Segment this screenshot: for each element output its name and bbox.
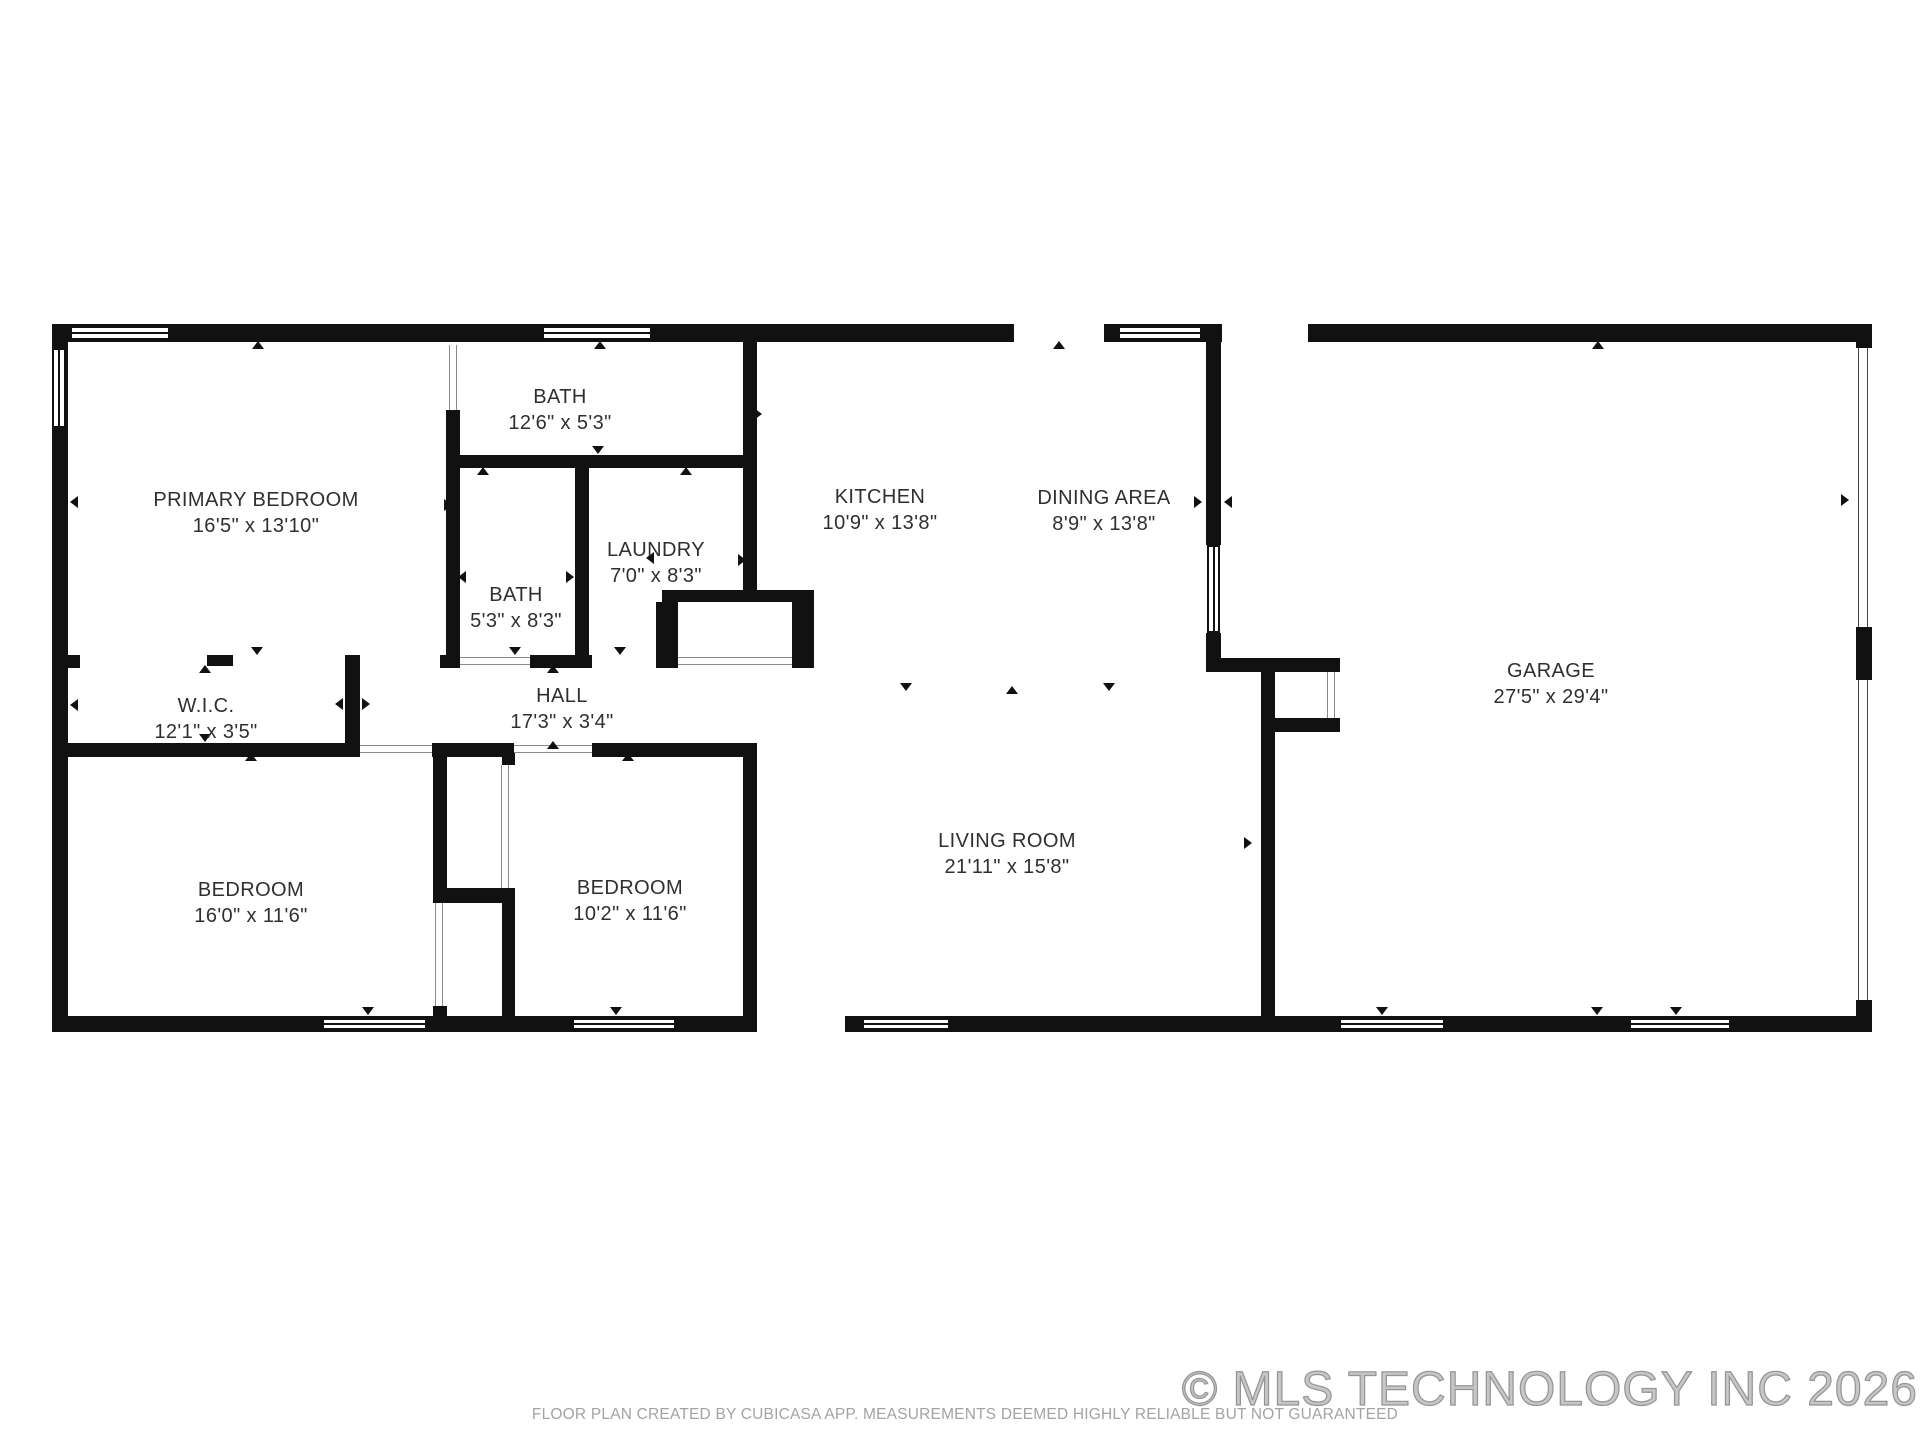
door-opening <box>501 765 509 888</box>
wall <box>52 324 1014 342</box>
room-dimensions: 8'9" x 13'8" <box>1037 511 1170 537</box>
room-dimensions: 12'6" x 5'3" <box>508 410 611 436</box>
window <box>572 1018 676 1030</box>
room-dimensions: 5'3" x 8'3" <box>470 608 562 634</box>
wall <box>446 410 460 668</box>
door-opening <box>460 657 530 665</box>
door-arrow-icon <box>199 665 211 673</box>
window <box>1207 545 1220 633</box>
room-name: HALL <box>510 683 613 709</box>
room-label-bedroom-left: BEDROOM16'0" x 11'6" <box>194 877 307 929</box>
wall <box>662 590 814 602</box>
wall <box>446 455 757 468</box>
room-name: BEDROOM <box>194 877 307 903</box>
room-name: W.I.C. <box>154 693 257 719</box>
door-arrow-icon <box>900 683 912 691</box>
door-opening <box>360 745 432 753</box>
room-name: PRIMARY BEDROOM <box>153 487 358 513</box>
room-dimensions: 7'0" x 8'3" <box>607 563 705 589</box>
door-arrow-icon <box>1591 1007 1603 1015</box>
wall <box>440 655 460 668</box>
wall <box>792 602 814 668</box>
door-arrow-icon <box>335 698 343 710</box>
room-label-bath-top: BATH12'6" x 5'3" <box>508 384 611 436</box>
door-arrow-icon <box>622 753 634 761</box>
room-label-dining-area: DINING AREA8'9" x 13'8" <box>1037 485 1170 537</box>
room-label-kitchen: KITCHEN10'9" x 13'8" <box>823 484 938 536</box>
wall <box>345 655 360 757</box>
wall <box>1261 660 1275 1016</box>
door-opening <box>1327 672 1335 718</box>
wall <box>502 903 515 1016</box>
room-dimensions: 17'3" x 3'4" <box>510 709 613 735</box>
door-arrow-icon <box>566 571 574 583</box>
door-arrow-icon <box>738 554 746 566</box>
door-arrow-icon <box>251 647 263 655</box>
door-opening <box>449 345 457 410</box>
window <box>70 326 170 340</box>
door-arrow-icon <box>592 446 604 454</box>
room-dimensions: 16'5" x 13'10" <box>153 513 358 539</box>
door-arrow-icon <box>610 1007 622 1015</box>
door-arrow-icon <box>252 341 264 349</box>
room-dimensions: 12'1" x 3'5" <box>154 719 257 745</box>
wall <box>1206 633 1221 658</box>
garage-door-opening <box>1858 680 1868 1000</box>
wall <box>656 602 678 668</box>
door-arrow-icon <box>1103 683 1115 691</box>
wall <box>52 324 68 1032</box>
room-name: LIVING ROOM <box>938 828 1076 854</box>
wall <box>592 743 757 757</box>
wall <box>1856 627 1872 680</box>
room-label-garage: GARAGE27'5" x 29'4" <box>1494 658 1609 710</box>
wall <box>1856 1000 1872 1016</box>
room-label-primary-bedroom: PRIMARY BEDROOM16'5" x 13'10" <box>153 487 358 539</box>
window <box>1339 1018 1445 1030</box>
door-arrow-icon <box>680 467 692 475</box>
wall <box>1274 718 1340 732</box>
room-name: BATH <box>470 582 562 608</box>
door-arrow-icon <box>70 496 78 508</box>
door-arrow-icon <box>594 341 606 349</box>
wall <box>1856 324 1872 348</box>
room-dimensions: 10'2" x 11'6" <box>573 901 686 927</box>
wall <box>433 888 515 903</box>
wall <box>433 1006 447 1016</box>
door-arrow-icon <box>1670 1007 1682 1015</box>
room-label-living-room: LIVING ROOM21'11" x 15'8" <box>938 828 1076 880</box>
room-label-bedroom-right: BEDROOM10'2" x 11'6" <box>573 875 686 927</box>
wall <box>68 743 360 757</box>
wall <box>530 655 592 668</box>
wall <box>1206 342 1221 545</box>
wall <box>575 468 589 668</box>
door-arrow-icon <box>362 1007 374 1015</box>
wall <box>1308 324 1872 342</box>
door-arrow-icon <box>614 647 626 655</box>
watermark-text: © MLS TECHNOLOGY INC 2026 <box>1182 1362 1918 1417</box>
wall <box>1206 658 1340 672</box>
door-arrow-icon <box>458 571 466 583</box>
door-arrow-icon <box>1376 1007 1388 1015</box>
room-name: DINING AREA <box>1037 485 1170 511</box>
door-arrow-icon <box>444 499 452 511</box>
room-name: LAUNDRY <box>607 537 705 563</box>
door-arrow-icon <box>1244 837 1252 849</box>
door-opening <box>435 903 443 1006</box>
room-label-hall: HALL17'3" x 3'4" <box>510 683 613 735</box>
room-dimensions: 27'5" x 29'4" <box>1494 684 1609 710</box>
room-dimensions: 10'9" x 13'8" <box>823 510 938 536</box>
door-arrow-icon <box>1194 496 1202 508</box>
room-label-laundry: LAUNDRY7'0" x 8'3" <box>607 537 705 589</box>
door-opening <box>678 657 792 665</box>
room-name: BATH <box>508 384 611 410</box>
garage-door-opening <box>1858 348 1868 627</box>
wall <box>743 745 757 1032</box>
window <box>1629 1018 1731 1030</box>
room-name: GARAGE <box>1494 658 1609 684</box>
door-arrow-icon <box>509 647 521 655</box>
window <box>862 1018 950 1030</box>
door-arrow-icon <box>362 698 370 710</box>
floor-plan: PRIMARY BEDROOM16'5" x 13'10"BATH12'6" x… <box>0 0 1920 1440</box>
door-arrow-icon <box>547 665 559 673</box>
wall <box>52 655 80 668</box>
room-label-wic: W.I.C.12'1" x 3'5" <box>154 693 257 745</box>
door-arrow-icon <box>1224 496 1232 508</box>
door-arrow-icon <box>1053 341 1065 349</box>
door-arrow-icon <box>754 408 762 420</box>
door-arrow-icon <box>1006 686 1018 694</box>
room-dimensions: 21'11" x 15'8" <box>938 854 1076 880</box>
window <box>322 1018 427 1030</box>
door-arrow-icon <box>477 467 489 475</box>
room-name: KITCHEN <box>823 484 938 510</box>
door-arrow-icon <box>70 699 78 711</box>
wall <box>433 757 447 895</box>
room-name: BEDROOM <box>573 875 686 901</box>
room-dimensions: 16'0" x 11'6" <box>194 903 307 929</box>
door-arrow-icon <box>547 741 559 749</box>
door-arrow-icon <box>245 753 257 761</box>
door-arrow-icon <box>1592 341 1604 349</box>
window <box>542 326 652 340</box>
room-label-bath-small: BATH5'3" x 8'3" <box>470 582 562 634</box>
window <box>52 348 66 428</box>
window <box>1118 326 1202 340</box>
door-arrow-icon <box>1841 494 1849 506</box>
